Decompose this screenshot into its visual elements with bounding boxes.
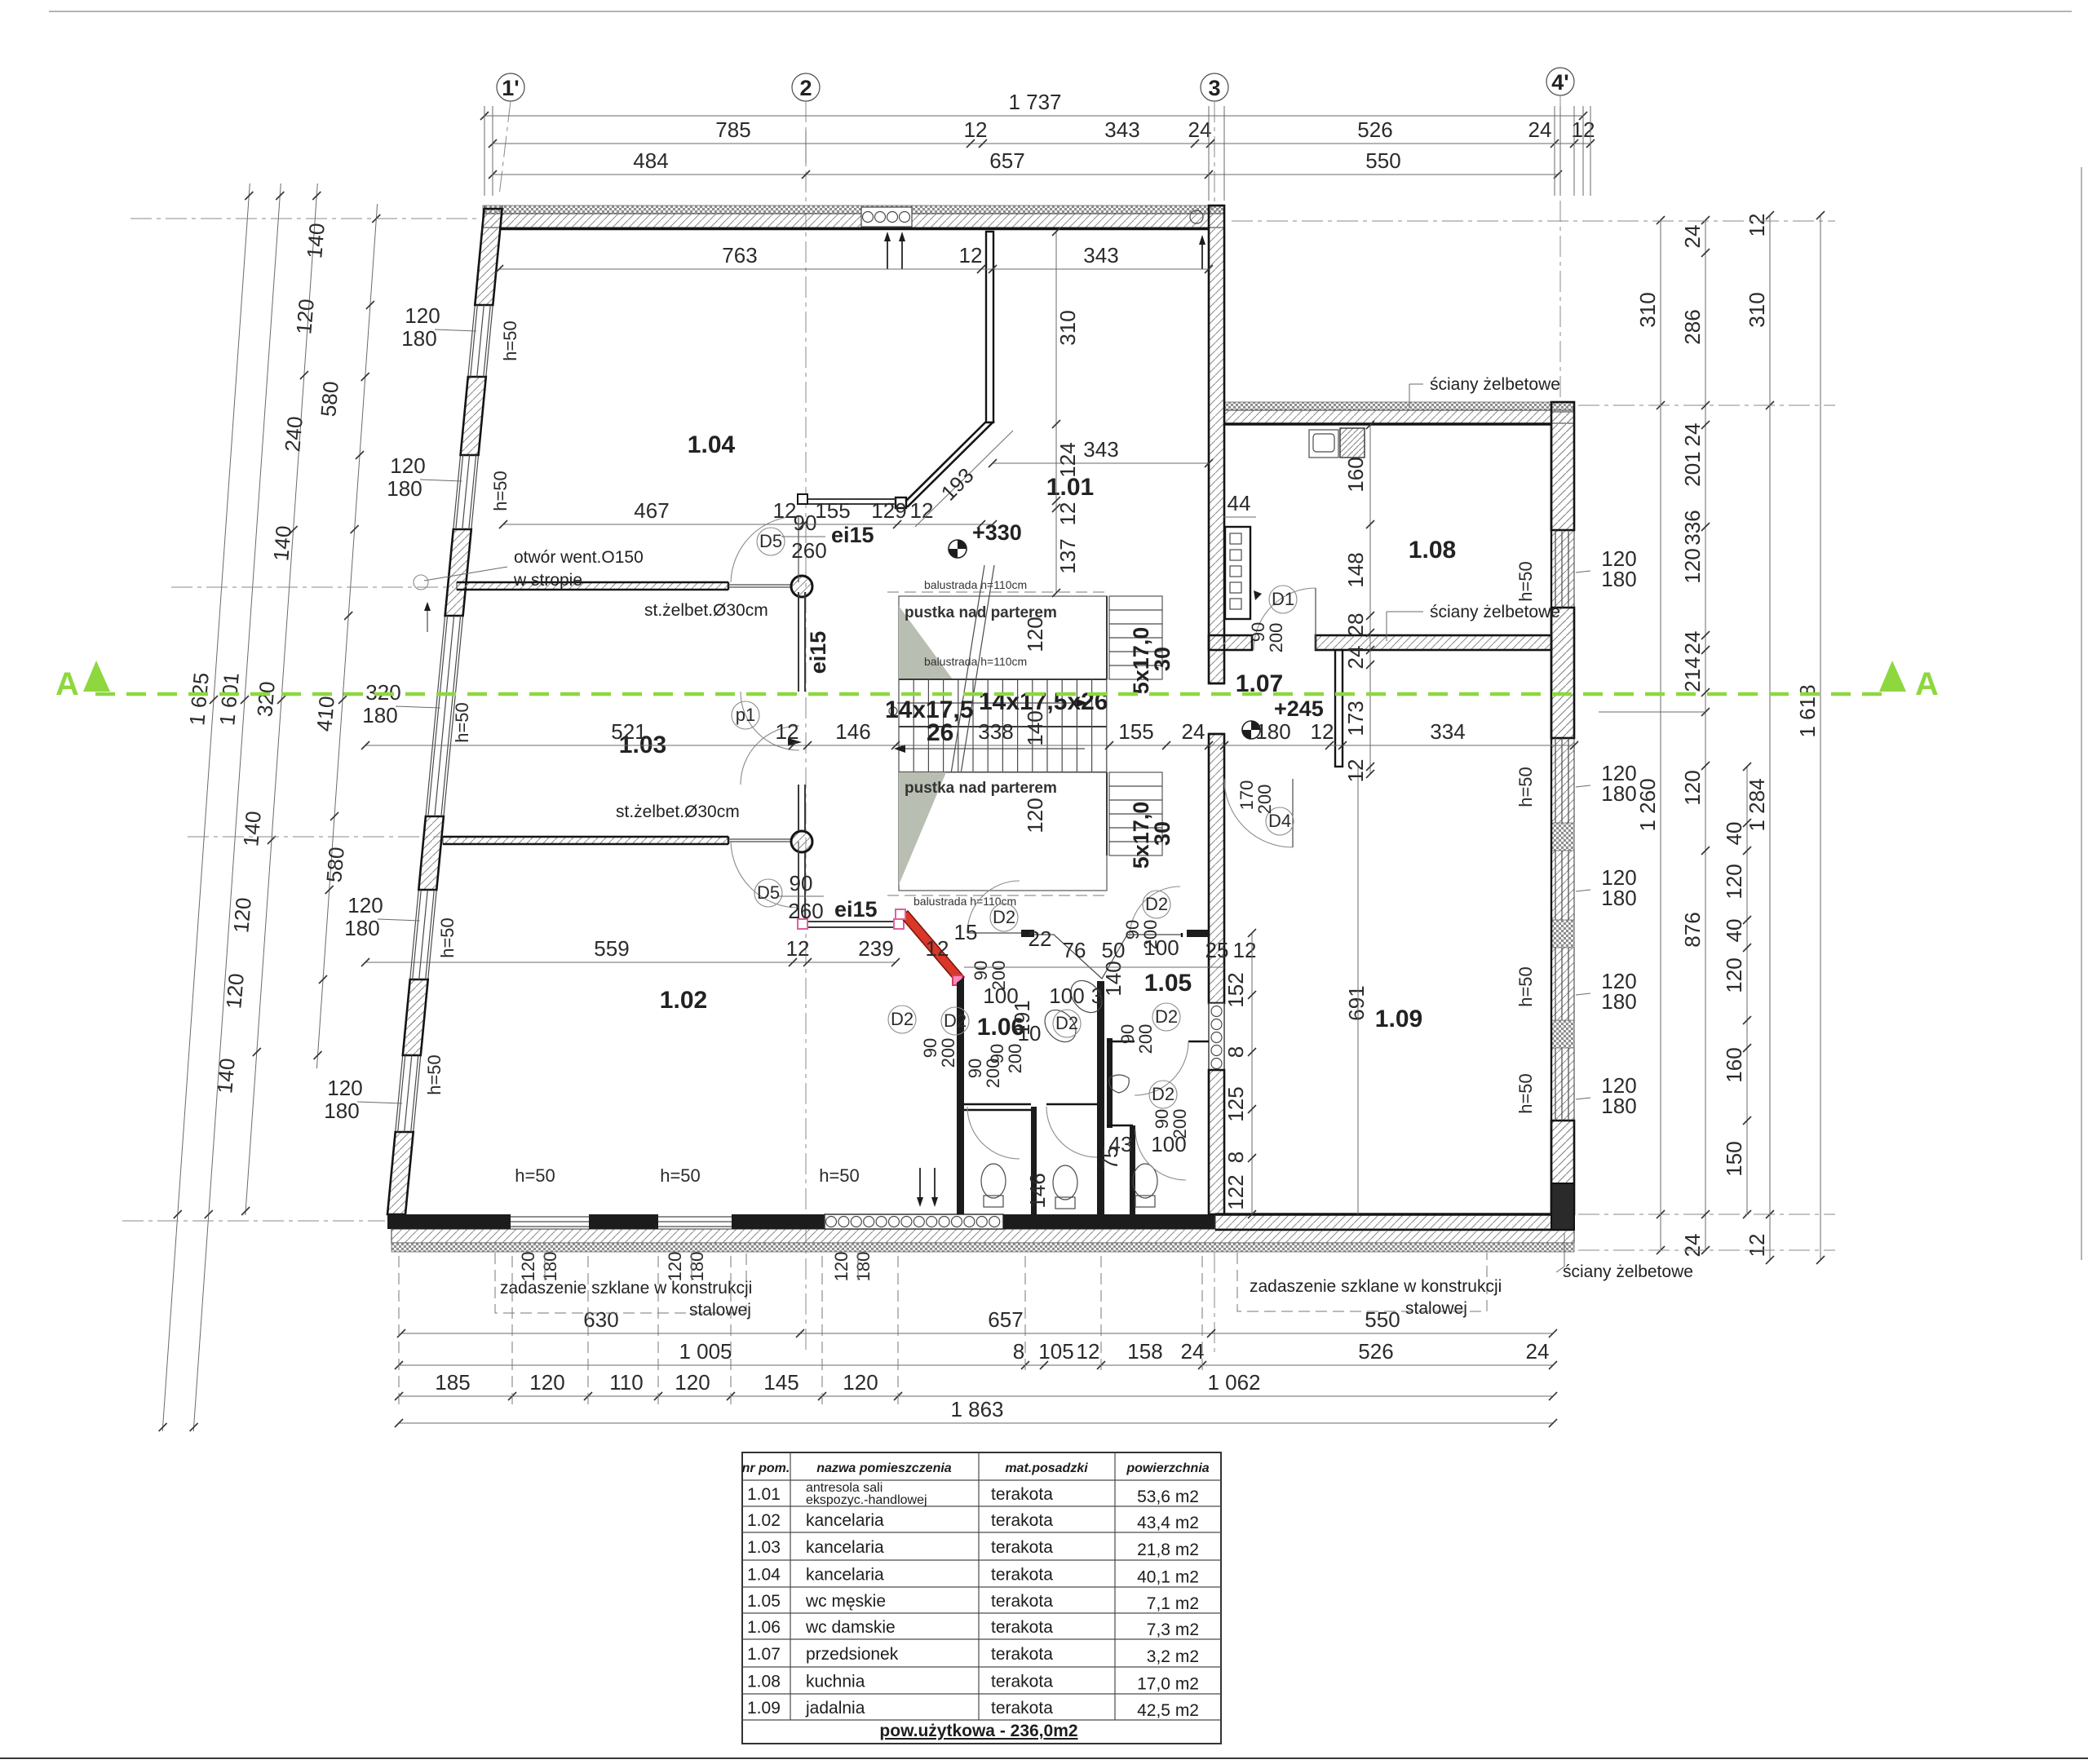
svg-text:90: 90 xyxy=(790,871,813,895)
svg-text:7,3 m2: 7,3 m2 xyxy=(1147,1620,1199,1639)
svg-text:wc damskie: wc damskie xyxy=(805,1618,896,1637)
svg-text:120: 120 xyxy=(843,1370,878,1395)
svg-text:D2: D2 xyxy=(993,907,1015,927)
svg-text:129: 129 xyxy=(871,498,906,523)
svg-text:100: 100 xyxy=(1151,1132,1186,1156)
svg-text:8: 8 xyxy=(1223,1152,1248,1163)
svg-text:1.06: 1.06 xyxy=(747,1618,781,1637)
svg-text:12: 12 xyxy=(773,498,797,523)
svg-text:120: 120 xyxy=(675,1370,710,1395)
svg-text:124: 124 xyxy=(1055,442,1080,477)
svg-text:148: 148 xyxy=(1343,552,1368,587)
svg-text:12: 12 xyxy=(926,936,949,961)
svg-text:140: 140 xyxy=(212,1057,240,1094)
svg-text:40,1 m2: 40,1 m2 xyxy=(1137,1568,1199,1587)
svg-text:1.04: 1.04 xyxy=(688,431,736,458)
svg-text:terakota: terakota xyxy=(991,1485,1053,1504)
svg-text:200: 200 xyxy=(983,1059,1003,1089)
svg-text:140: 140 xyxy=(1023,710,1047,745)
svg-text:12: 12 xyxy=(964,117,988,142)
svg-text:kuchnia: kuchnia xyxy=(806,1673,865,1691)
svg-text:12: 12 xyxy=(1745,214,1769,237)
svg-text:h=50: h=50 xyxy=(819,1165,860,1186)
svg-text:24: 24 xyxy=(1680,1234,1705,1258)
svg-text:550: 550 xyxy=(1365,148,1400,173)
svg-text:22: 22 xyxy=(1029,926,1052,951)
svg-text:122: 122 xyxy=(1223,1174,1248,1209)
svg-text:4': 4' xyxy=(1551,70,1568,95)
svg-text:180: 180 xyxy=(1601,567,1636,591)
svg-text:h=50: h=50 xyxy=(500,321,520,361)
svg-text:24: 24 xyxy=(1528,117,1552,142)
svg-text:155: 155 xyxy=(1118,719,1153,744)
svg-text:580: 580 xyxy=(316,380,343,418)
svg-text:kancelaria: kancelaria xyxy=(806,1566,884,1585)
svg-text:h=50: h=50 xyxy=(1515,966,1536,1007)
svg-text:180: 180 xyxy=(540,1252,560,1282)
svg-text:180: 180 xyxy=(1601,989,1636,1014)
svg-text:mat.posadzki: mat.posadzki xyxy=(1005,1461,1088,1475)
svg-text:h=50: h=50 xyxy=(424,1054,445,1095)
svg-text:stalowej: stalowej xyxy=(1405,1299,1467,1318)
svg-text:120: 120 xyxy=(291,298,319,335)
svg-text:120: 120 xyxy=(665,1252,685,1282)
svg-text:76: 76 xyxy=(1063,938,1086,962)
svg-text:146: 146 xyxy=(1025,1173,1050,1208)
svg-text:terakota: terakota xyxy=(991,1645,1053,1664)
svg-text:336: 336 xyxy=(1680,510,1705,545)
svg-text:h=50: h=50 xyxy=(660,1165,701,1186)
svg-text:120: 120 xyxy=(347,893,383,917)
svg-text:h=50: h=50 xyxy=(437,917,458,958)
svg-text:180: 180 xyxy=(401,326,436,351)
svg-text:D2: D2 xyxy=(891,1009,913,1029)
svg-text:343: 343 xyxy=(1083,243,1118,267)
svg-text:st.żelbet.Ø30cm: st.żelbet.Ø30cm xyxy=(644,601,768,620)
svg-text:ei15: ei15 xyxy=(831,523,874,547)
svg-text:21,8 m2: 21,8 m2 xyxy=(1137,1541,1199,1559)
svg-text:balustrada h=110cm: balustrada h=110cm xyxy=(913,895,1016,908)
svg-text:200: 200 xyxy=(1005,1044,1025,1074)
svg-text:120: 120 xyxy=(390,453,425,478)
svg-text:12: 12 xyxy=(1055,502,1080,526)
svg-text:125: 125 xyxy=(1223,1086,1248,1121)
svg-text:338: 338 xyxy=(978,719,1013,744)
svg-text:+245: +245 xyxy=(1274,696,1324,721)
svg-text:785: 785 xyxy=(715,117,750,142)
svg-text:526: 526 xyxy=(1357,117,1392,142)
svg-text:10: 10 xyxy=(1018,1021,1042,1046)
svg-text:h=50: h=50 xyxy=(1515,767,1536,807)
svg-text:terakota: terakota xyxy=(991,1673,1053,1691)
svg-text:120: 120 xyxy=(1023,798,1047,833)
svg-text:12: 12 xyxy=(1343,759,1368,783)
svg-text:balustrada h=110cm: balustrada h=110cm xyxy=(924,655,1027,668)
svg-text:158: 158 xyxy=(1127,1339,1162,1364)
svg-text:180: 180 xyxy=(853,1252,874,1282)
svg-text:przedsionek: przedsionek xyxy=(806,1645,899,1664)
svg-text:100: 100 xyxy=(1049,984,1084,1008)
svg-text:526: 526 xyxy=(1358,1339,1393,1364)
svg-text:24: 24 xyxy=(1343,646,1368,670)
svg-text:terakota: terakota xyxy=(991,1618,1053,1637)
svg-text:155: 155 xyxy=(815,498,850,523)
svg-text:160: 160 xyxy=(1722,1047,1746,1082)
svg-text:1 005: 1 005 xyxy=(679,1339,732,1364)
svg-text:D1: D1 xyxy=(1272,589,1294,609)
svg-text:12: 12 xyxy=(959,243,983,267)
svg-text:320: 320 xyxy=(252,680,280,718)
svg-text:kancelaria: kancelaria xyxy=(806,1538,884,1557)
svg-text:120: 120 xyxy=(405,303,440,328)
svg-text:nazwa pomieszczenia: nazwa pomieszczenia xyxy=(816,1461,951,1475)
svg-text:53,6 m2: 53,6 m2 xyxy=(1137,1488,1199,1506)
svg-text:zadaszenie szklane w konstrukc: zadaszenie szklane w konstrukcji xyxy=(1250,1277,1502,1296)
svg-text:559: 559 xyxy=(594,936,629,961)
svg-text:30: 30 xyxy=(1150,821,1174,846)
svg-text:h=50: h=50 xyxy=(515,1165,555,1186)
svg-text:691: 691 xyxy=(1344,985,1369,1020)
svg-text:180: 180 xyxy=(362,703,397,727)
svg-text:24: 24 xyxy=(1526,1339,1550,1364)
svg-text:A: A xyxy=(55,666,79,702)
svg-text:24: 24 xyxy=(1182,719,1205,744)
svg-text:310: 310 xyxy=(1055,310,1080,345)
svg-text:173: 173 xyxy=(1343,701,1368,736)
svg-text:pustka nad parterem: pustka nad parterem xyxy=(905,780,1057,797)
svg-text:terakota: terakota xyxy=(991,1699,1053,1718)
svg-text:105: 105 xyxy=(1038,1339,1073,1364)
svg-text:terakota: terakota xyxy=(991,1592,1053,1611)
svg-text:kancelaria: kancelaria xyxy=(806,1511,884,1530)
svg-text:260: 260 xyxy=(788,899,823,923)
svg-text:110: 110 xyxy=(609,1370,643,1395)
svg-text:152: 152 xyxy=(1223,972,1248,1007)
svg-text:120: 120 xyxy=(221,972,249,1010)
svg-text:185: 185 xyxy=(435,1370,470,1395)
svg-text:120: 120 xyxy=(1023,617,1047,652)
svg-text:30: 30 xyxy=(1150,647,1174,671)
svg-text:580: 580 xyxy=(321,846,349,883)
svg-text:7,1 m2: 7,1 m2 xyxy=(1147,1594,1199,1613)
svg-text:26: 26 xyxy=(927,719,953,746)
svg-text:ściany żelbetowe: ściany żelbetowe xyxy=(1430,375,1560,394)
svg-text:657: 657 xyxy=(989,148,1024,173)
svg-text:12: 12 xyxy=(1077,1339,1100,1364)
svg-text:343: 343 xyxy=(1083,437,1118,462)
svg-text:763: 763 xyxy=(722,243,757,267)
svg-text:pow.użytkowa - 236,0m2: pow.użytkowa - 236,0m2 xyxy=(879,1722,1077,1740)
svg-text:24: 24 xyxy=(1680,631,1705,655)
svg-text:239: 239 xyxy=(858,936,893,961)
svg-text:100: 100 xyxy=(1144,935,1179,960)
svg-text:180: 180 xyxy=(1255,719,1290,744)
svg-text:24: 24 xyxy=(1680,225,1705,249)
svg-text:1 062: 1 062 xyxy=(1207,1370,1260,1395)
svg-text:260: 260 xyxy=(791,538,826,563)
svg-text:630: 630 xyxy=(583,1307,618,1332)
svg-text:ei15: ei15 xyxy=(834,897,878,922)
svg-text:286: 286 xyxy=(1680,309,1705,344)
svg-text:120: 120 xyxy=(1680,548,1705,583)
svg-text:180: 180 xyxy=(687,1252,707,1282)
svg-text:terakota: terakota xyxy=(991,1566,1053,1585)
svg-text:D2: D2 xyxy=(1155,1006,1178,1027)
svg-text:43: 43 xyxy=(1109,1132,1133,1156)
svg-text:120: 120 xyxy=(1680,770,1705,805)
svg-text:200: 200 xyxy=(938,1038,958,1068)
svg-text:A: A xyxy=(1915,666,1939,702)
svg-text:h=50: h=50 xyxy=(452,702,472,743)
svg-text:w stropie: w stropie xyxy=(513,571,582,590)
svg-text:3,2 m2: 3,2 m2 xyxy=(1147,1647,1199,1666)
svg-text:40: 40 xyxy=(1722,822,1746,846)
svg-text:410: 410 xyxy=(312,695,339,732)
svg-text:484: 484 xyxy=(633,148,668,173)
svg-text:467: 467 xyxy=(634,498,669,523)
svg-text:25: 25 xyxy=(1205,938,1229,962)
svg-text:120: 120 xyxy=(327,1076,362,1100)
svg-text:24: 24 xyxy=(1188,117,1212,142)
svg-text:12: 12 xyxy=(1745,1234,1769,1258)
svg-text:stalowej: stalowej xyxy=(689,1301,751,1320)
svg-text:657: 657 xyxy=(988,1307,1023,1332)
svg-text:D5: D5 xyxy=(757,882,780,903)
svg-text:powierzchnia: powierzchnia xyxy=(1126,1461,1209,1475)
svg-text:137: 137 xyxy=(1055,538,1080,573)
svg-text:120: 120 xyxy=(1722,864,1746,899)
svg-text:1.05: 1.05 xyxy=(747,1592,781,1611)
svg-text:1.02: 1.02 xyxy=(747,1511,781,1530)
svg-text:1.08: 1.08 xyxy=(1409,537,1456,564)
svg-text:120: 120 xyxy=(518,1252,538,1282)
svg-text:wc męskie: wc męskie xyxy=(805,1592,886,1611)
svg-text:1.09: 1.09 xyxy=(747,1699,781,1718)
svg-text:44: 44 xyxy=(1228,491,1251,515)
svg-text:h=50: h=50 xyxy=(1515,1073,1536,1114)
svg-text:140: 140 xyxy=(238,810,266,847)
svg-text:180: 180 xyxy=(1601,1094,1636,1118)
svg-text:D2: D2 xyxy=(1055,1013,1078,1033)
svg-text:h=50: h=50 xyxy=(1515,561,1536,602)
svg-text:334: 334 xyxy=(1430,719,1465,744)
svg-text:1': 1' xyxy=(502,76,519,100)
svg-text:p1: p1 xyxy=(736,705,755,725)
svg-text:D2: D2 xyxy=(1145,894,1168,914)
svg-text:40: 40 xyxy=(1722,919,1746,943)
svg-text:ściany żelbetowe: ściany żelbetowe xyxy=(1430,603,1560,621)
svg-text:1.01: 1.01 xyxy=(747,1485,781,1504)
svg-text:3: 3 xyxy=(1208,76,1220,100)
svg-text:42,5 m2: 42,5 m2 xyxy=(1137,1701,1199,1720)
svg-text:1.08: 1.08 xyxy=(747,1673,781,1691)
svg-text:12: 12 xyxy=(1311,719,1334,744)
svg-text:876: 876 xyxy=(1680,912,1705,947)
svg-text:1 863: 1 863 xyxy=(950,1397,1003,1421)
svg-text:15: 15 xyxy=(954,920,978,944)
svg-text:1.02: 1.02 xyxy=(660,987,707,1014)
svg-text:200: 200 xyxy=(1266,623,1286,653)
svg-text:jadalnia: jadalnia xyxy=(805,1699,865,1718)
svg-text:D2: D2 xyxy=(1152,1084,1174,1104)
svg-text:120: 120 xyxy=(831,1252,852,1282)
svg-text:1 625: 1 625 xyxy=(184,671,214,726)
svg-text:D2: D2 xyxy=(944,1010,967,1031)
svg-text:1 737: 1 737 xyxy=(1008,90,1061,114)
svg-text:180: 180 xyxy=(1601,781,1636,806)
svg-text:h=50: h=50 xyxy=(490,471,511,511)
svg-text:12: 12 xyxy=(1233,938,1257,962)
svg-text:otwór went.O150: otwór went.O150 xyxy=(514,548,644,567)
svg-text:1 601: 1 601 xyxy=(215,671,244,726)
svg-text:ściany żelbetowe: ściany żelbetowe xyxy=(1563,1262,1693,1281)
svg-text:nr pom.: nr pom. xyxy=(742,1461,790,1475)
svg-text:D5: D5 xyxy=(759,531,782,551)
svg-text:200: 200 xyxy=(1135,1024,1156,1054)
svg-text:terakota: terakota xyxy=(991,1511,1053,1530)
svg-text:17,0 m2: 17,0 m2 xyxy=(1137,1675,1199,1694)
svg-text:12: 12 xyxy=(786,936,810,961)
svg-text:146: 146 xyxy=(835,719,870,744)
svg-text:180: 180 xyxy=(387,476,422,501)
svg-text:310: 310 xyxy=(1635,292,1660,327)
svg-text:214: 214 xyxy=(1680,657,1705,692)
svg-text:1.04: 1.04 xyxy=(747,1566,781,1585)
svg-text:145: 145 xyxy=(763,1370,798,1395)
svg-text:140: 140 xyxy=(268,524,296,562)
svg-text:28: 28 xyxy=(1343,613,1368,637)
svg-text:24: 24 xyxy=(1181,1339,1205,1364)
svg-text:terakota: terakota xyxy=(991,1538,1053,1557)
svg-text:8: 8 xyxy=(1013,1339,1024,1364)
svg-text:150: 150 xyxy=(1722,1141,1746,1176)
svg-text:201: 201 xyxy=(1680,451,1705,486)
svg-text:12: 12 xyxy=(910,498,934,523)
svg-text:1 284: 1 284 xyxy=(1745,778,1769,831)
svg-text:24: 24 xyxy=(1680,423,1705,447)
svg-text:521: 521 xyxy=(611,719,646,744)
svg-text:180: 180 xyxy=(344,916,379,940)
svg-text:343: 343 xyxy=(1104,117,1139,142)
svg-text:ei15: ei15 xyxy=(806,631,830,674)
svg-text:120: 120 xyxy=(228,896,256,934)
svg-text:180: 180 xyxy=(324,1099,359,1123)
svg-text:160: 160 xyxy=(1343,457,1368,492)
svg-text:120: 120 xyxy=(529,1370,564,1395)
svg-text:1.09: 1.09 xyxy=(1375,1006,1422,1032)
svg-text:1 260: 1 260 xyxy=(1635,778,1660,831)
svg-text:12: 12 xyxy=(776,719,799,744)
svg-text:1.05: 1.05 xyxy=(1144,970,1192,997)
svg-text:200: 200 xyxy=(1254,785,1275,815)
svg-text:180: 180 xyxy=(1601,886,1636,910)
svg-text:120: 120 xyxy=(1722,957,1746,993)
svg-text:50: 50 xyxy=(1102,938,1126,962)
svg-text:ekspozyc.-handlowej: ekspozyc.-handlowej xyxy=(806,1493,927,1507)
svg-text:st.żelbet.Ø30cm: st.żelbet.Ø30cm xyxy=(616,802,740,821)
svg-text:1.03: 1.03 xyxy=(747,1538,781,1557)
svg-text:140: 140 xyxy=(302,222,330,259)
svg-text:240: 240 xyxy=(280,415,307,453)
svg-text:310: 310 xyxy=(1745,292,1769,327)
svg-text:2: 2 xyxy=(799,76,812,100)
svg-text:140: 140 xyxy=(1101,961,1126,996)
svg-text:43,4 m2: 43,4 m2 xyxy=(1137,1514,1199,1532)
svg-text:1.07: 1.07 xyxy=(747,1645,781,1664)
svg-text:8: 8 xyxy=(1223,1046,1248,1058)
svg-text:balustrada h=110cm: balustrada h=110cm xyxy=(924,578,1027,591)
